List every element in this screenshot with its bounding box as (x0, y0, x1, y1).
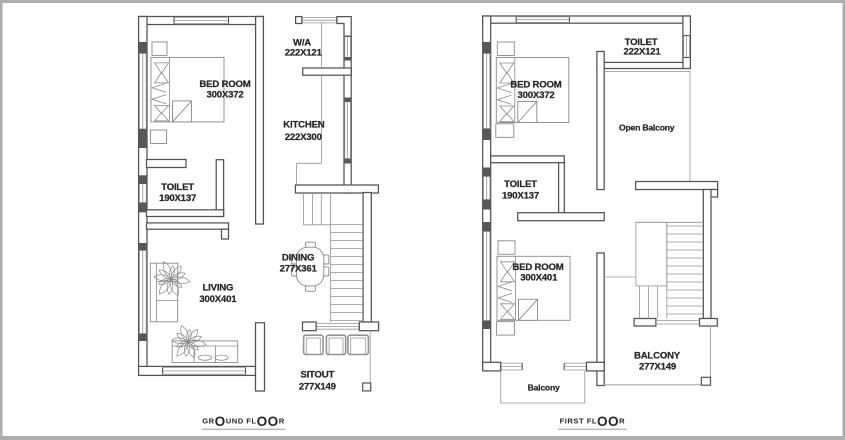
svg-text:SITOUT: SITOUT (300, 369, 334, 380)
svg-text:300X372: 300X372 (517, 90, 554, 101)
svg-text:FIRST FLOOR: FIRST FLOOR (560, 414, 625, 429)
svg-text:LIVING: LIVING (203, 282, 234, 293)
svg-text:DINING: DINING (282, 252, 314, 263)
svg-text:300X372: 300X372 (206, 89, 243, 100)
svg-text:190X137: 190X137 (502, 190, 539, 201)
svg-text:TOILET: TOILET (504, 179, 537, 190)
svg-text:Open Balcony: Open Balcony (619, 122, 675, 132)
svg-text:277X149: 277X149 (299, 381, 336, 392)
svg-text:BALCONY: BALCONY (634, 351, 681, 362)
svg-text:KITCHEN: KITCHEN (283, 119, 325, 130)
svg-text:222X300: 222X300 (285, 132, 322, 143)
svg-text:222X121: 222X121 (285, 48, 323, 59)
svg-text:BED ROOM: BED ROOM (199, 79, 250, 90)
svg-text:277X149: 277X149 (639, 361, 676, 372)
svg-text:TOILET: TOILET (161, 182, 194, 193)
svg-text:190X137: 190X137 (159, 193, 196, 204)
svg-text:GROUND FLOOR: GROUND FLOOR (202, 414, 284, 429)
svg-text:300X401: 300X401 (199, 294, 237, 305)
svg-text:300X401: 300X401 (520, 272, 558, 283)
svg-text:277X361: 277X361 (280, 264, 318, 275)
svg-text:222X121: 222X121 (623, 47, 661, 58)
svg-text:Balcony: Balcony (528, 383, 560, 393)
svg-text:BED ROOM: BED ROOM (510, 79, 561, 90)
